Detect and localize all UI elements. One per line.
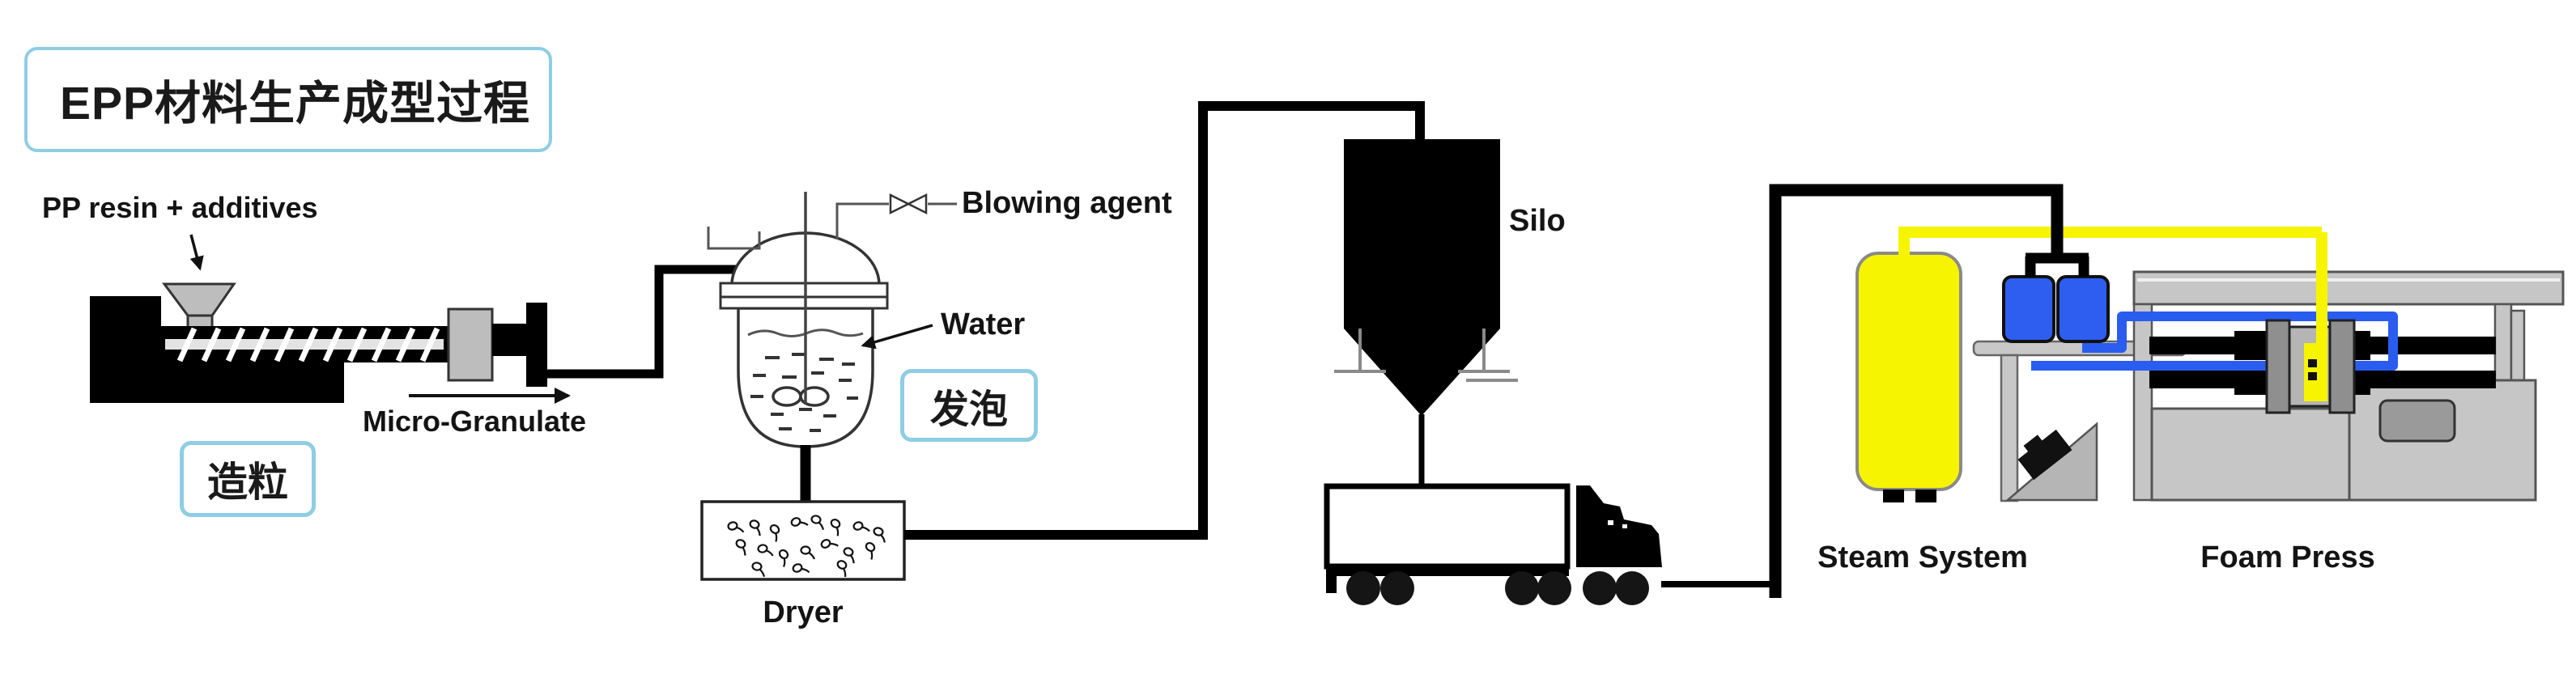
valve-icon [908,195,926,213]
steam-pipe-horizontal [1904,232,2322,255]
granulation-stage-tag: 造粒 [180,441,316,517]
die-neck [492,324,526,356]
die-block [448,309,492,380]
press-mold-assembly [2267,232,2354,413]
diagram-title: EPP材料生产成型过程 [60,66,530,133]
blowing-agent-pipe [837,204,889,240]
steam-system-label: Steam System [1817,540,2028,575]
feed-arrow-icon [191,235,200,269]
press-table-top [2134,272,2563,304]
steam-tank-body [1857,253,1961,490]
truck-trailer [1327,486,1567,566]
valve-block-left [2004,277,2054,341]
valve-icon [891,195,908,213]
press-left-post [2134,304,2152,500]
cab-window [1622,524,1627,528]
control-panel-icon [2380,401,2455,441]
tank-foot [1883,490,1904,502]
press-right-column [2495,304,2511,382]
water-label: Water [941,307,1025,342]
silo-label: Silo [1509,204,1566,239]
flange-upper [721,283,887,297]
tank-foot [1915,490,1936,502]
foam-press-label: Foam Press [2200,540,2374,575]
stirrer-blade-left [773,388,801,405]
flange-lower [721,297,887,308]
press-right-column [2511,311,2524,382]
granulation-stage-label: 造粒 [207,450,288,508]
mold-insert [2308,372,2317,380]
silo-hopper [1334,139,1518,416]
truck-cab [1576,485,1662,567]
press-lower-body [2152,409,2349,500]
pp-resin-label: PP resin + additives [42,191,318,225]
diagram-title-box: EPP材料生产成型过程 [24,47,552,152]
mold-insert [2308,359,2317,367]
blowing-agent-label: Blowing agent [962,186,1172,221]
die-plate [526,303,547,387]
steam-tank [1857,253,1961,502]
cab-window [1608,520,1613,525]
truck-mudflap [1326,567,1337,593]
micro-granulate-label: Micro-Granulate [363,405,586,439]
transport-truck [1326,485,1662,605]
feed-hopper-icon [164,284,234,316]
valve-block-right [2058,277,2108,341]
extruder-base [90,362,344,403]
platform-leg [2001,355,2017,501]
foaming-stage-label: 发泡 [930,377,1008,434]
truck-wheels-icon [1346,571,1649,605]
platen-right [2330,320,2354,413]
foaming-stage-tag: 发泡 [900,369,1038,442]
dryer-box [702,502,904,579]
epp-process-diagram: EPP材料生产成型过程 PP resin + additives 造粒 Micr… [0,0,2576,674]
vent-pipe-icon [708,227,759,248]
extruder-machine [90,235,568,403]
platen-left [2267,320,2289,413]
dryer-label: Dryer [763,596,843,630]
fill-clamp-icon [2026,256,2089,277]
